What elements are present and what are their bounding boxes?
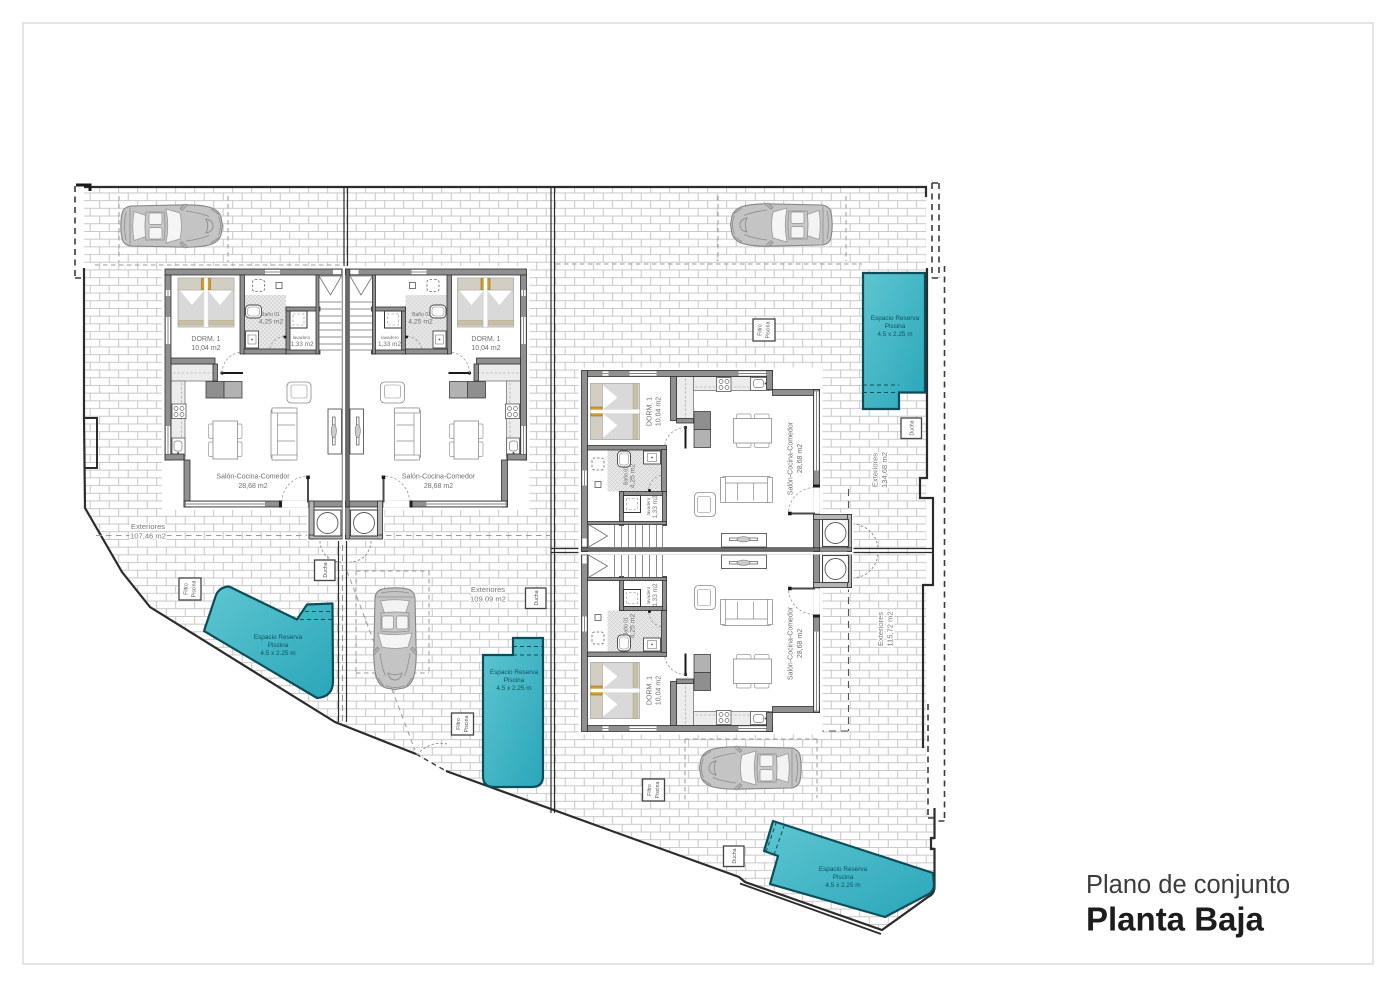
svg-text:Salón-Cocina-Comedor: Salón-Cocina-Comedor [788,421,795,495]
svg-text:Baño 01: Baño 01 [412,312,431,318]
svg-text:10,04 m2: 10,04 m2 [471,345,500,352]
svg-text:Filtro: Filtro [456,718,462,730]
svg-text:Filtro: Filtro [647,784,653,796]
svg-text:Exteriores: Exteriores [876,612,885,646]
svg-text:Salón-Cocina-Comedor: Salón-Cocina-Comedor [216,474,290,481]
svg-text:134,68 m2: 134,68 m2 [880,452,889,488]
svg-text:DORM. 1: DORM. 1 [647,397,654,426]
svg-text:109.09 m2: 109.09 m2 [470,595,506,604]
svg-text:Espacio Reserva: Espacio Reserva [871,315,920,322]
svg-text:10,04 m2: 10,04 m2 [656,397,663,426]
svg-text:lavadero: lavadero [293,335,311,340]
svg-text:Filtro: Filtro [758,324,764,336]
svg-text:Salón-Cocina-Comedor: Salón-Cocina-Comedor [788,606,795,680]
svg-text:Piscina: Piscina [766,322,772,339]
svg-text:Espacio Reserva: Espacio Reserva [254,634,303,641]
svg-text:Piscina: Piscina [655,782,661,799]
svg-text:Espacio Reserva: Espacio Reserva [819,866,868,873]
svg-text:DORM. 1: DORM. 1 [191,336,220,343]
svg-text:4.5 x 2.25 m: 4.5 x 2.25 m [825,882,860,889]
svg-text:Filtro: Filtro [184,583,190,595]
svg-text:1,33 m2: 1,33 m2 [378,341,402,348]
svg-text:115,72 m2: 115,72 m2 [886,611,895,646]
svg-text:4,25 m2: 4,25 m2 [630,614,637,639]
svg-text:Baño 01: Baño 01 [261,312,280,318]
svg-text:10,04 m2: 10,04 m2 [191,345,220,352]
svg-text:Plano de conjunto: Plano de conjunto [1086,871,1290,899]
svg-text:1,33 m2: 1,33 m2 [652,583,659,607]
svg-text:Ducha: Ducha [323,562,329,577]
svg-text:Planta Baja: Planta Baja [1086,901,1265,938]
svg-text:Salón-Cocina-Comedor: Salón-Cocina-Comedor [402,474,476,481]
svg-text:1,33 m2: 1,33 m2 [290,341,314,348]
svg-text:1,33 m2: 1,33 m2 [652,495,659,519]
svg-text:Piscina: Piscina [268,642,289,649]
svg-text:Ducha: Ducha [732,848,738,863]
svg-text:Piscina: Piscina [192,581,198,598]
svg-text:Espacio Reserva: Espacio Reserva [490,669,539,676]
svg-text:4,25 m2: 4,25 m2 [259,319,284,326]
svg-text:Ducha: Ducha [534,590,540,605]
svg-text:Exteriores: Exteriores [471,585,505,594]
svg-text:4.5 x 2.25 m: 4.5 x 2.25 m [260,650,295,657]
svg-text:DORM. 1: DORM. 1 [471,336,500,343]
svg-text:28,68 m2: 28,68 m2 [797,629,804,658]
svg-text:4.5 x 2.25 m: 4.5 x 2.25 m [496,685,531,692]
svg-text:Piscina: Piscina [464,716,470,733]
svg-text:Ducha: Ducha [910,420,916,435]
svg-text:4,25 m2: 4,25 m2 [408,319,433,326]
svg-text:107,46 m2: 107,46 m2 [130,532,166,541]
svg-text:Exteriores: Exteriores [871,453,880,487]
svg-text:28,68 m2: 28,68 m2 [238,483,267,490]
svg-text:28,68 m2: 28,68 m2 [424,483,453,490]
svg-text:DORM. 1: DORM. 1 [647,676,654,705]
svg-text:lavadero: lavadero [381,335,399,340]
svg-text:Piscina: Piscina [833,874,854,881]
svg-text:lavadero: lavadero [646,497,651,515]
svg-text:10,04 m2: 10,04 m2 [656,676,663,705]
svg-text:lavadero: lavadero [646,586,651,604]
svg-text:Piscina: Piscina [504,677,525,684]
svg-text:4,25 m2: 4,25 m2 [630,464,637,489]
svg-text:4.5 x 2.25 m: 4.5 x 2.25 m [877,331,912,338]
svg-text:Piscina: Piscina [885,323,906,330]
svg-text:28,68 m2: 28,68 m2 [797,444,804,473]
svg-text:Exteriores: Exteriores [131,522,165,531]
